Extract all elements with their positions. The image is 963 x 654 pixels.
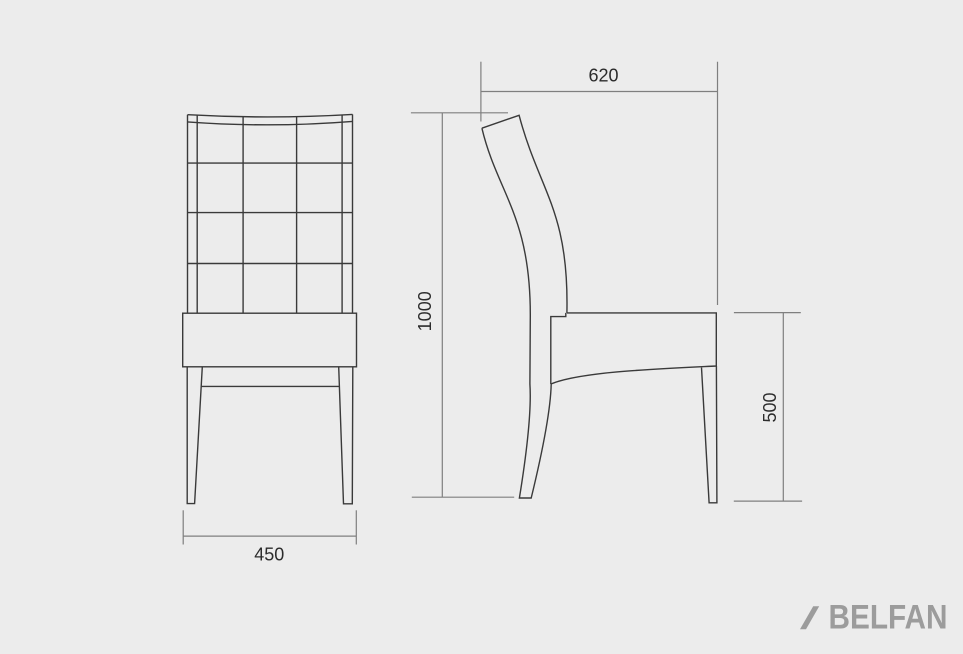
svg-text:450: 450: [254, 544, 284, 564]
svg-text:500: 500: [760, 392, 780, 422]
svg-text:620: 620: [588, 66, 618, 86]
svg-text:BELFAN: BELFAN: [829, 599, 948, 637]
svg-text:1000: 1000: [415, 291, 435, 331]
